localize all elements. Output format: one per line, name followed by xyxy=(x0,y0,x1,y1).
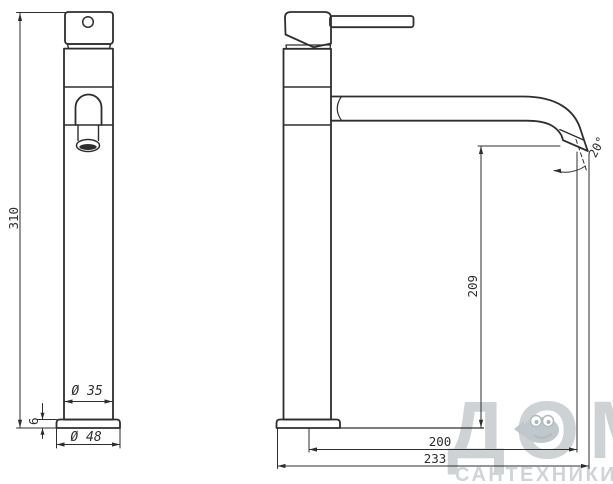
dim-d35-label: Ø 35 xyxy=(57,385,117,398)
dim-310-label: 310 xyxy=(8,198,21,238)
handle-lever xyxy=(330,16,414,27)
dim-6-label: 6 xyxy=(28,401,41,441)
front-view xyxy=(57,12,121,428)
faucet-drawing-linework xyxy=(0,0,613,484)
dim-310 xyxy=(17,13,66,429)
faucet-body-side xyxy=(284,49,332,420)
dim-209 xyxy=(478,146,560,428)
spout-side-profile xyxy=(331,97,588,152)
base-flange-side xyxy=(277,420,341,429)
dim-200-label: 200 xyxy=(410,436,470,449)
spout-front-profile xyxy=(76,95,102,126)
technical-drawing-canvas: ДОМ САНТЕХНИКИ xyxy=(0,0,613,484)
side-view xyxy=(277,12,588,428)
base-flange-front xyxy=(57,420,121,429)
faucet-body-front xyxy=(64,49,113,420)
dim-20deg xyxy=(554,166,586,173)
spout-body-fillet xyxy=(337,97,341,121)
handle-pivot-hole xyxy=(83,17,94,28)
dim-d35 xyxy=(65,399,113,403)
dimension-linework xyxy=(17,13,590,469)
dim-209-label: 209 xyxy=(467,266,480,306)
aerator-opening-shade xyxy=(79,144,96,150)
dim-233 xyxy=(278,154,590,469)
dim-d48-label: Ø 48 xyxy=(56,431,116,444)
dim-200 xyxy=(309,152,577,452)
dim-233-label: 233 xyxy=(405,453,465,466)
handle-cap-side xyxy=(285,12,331,47)
